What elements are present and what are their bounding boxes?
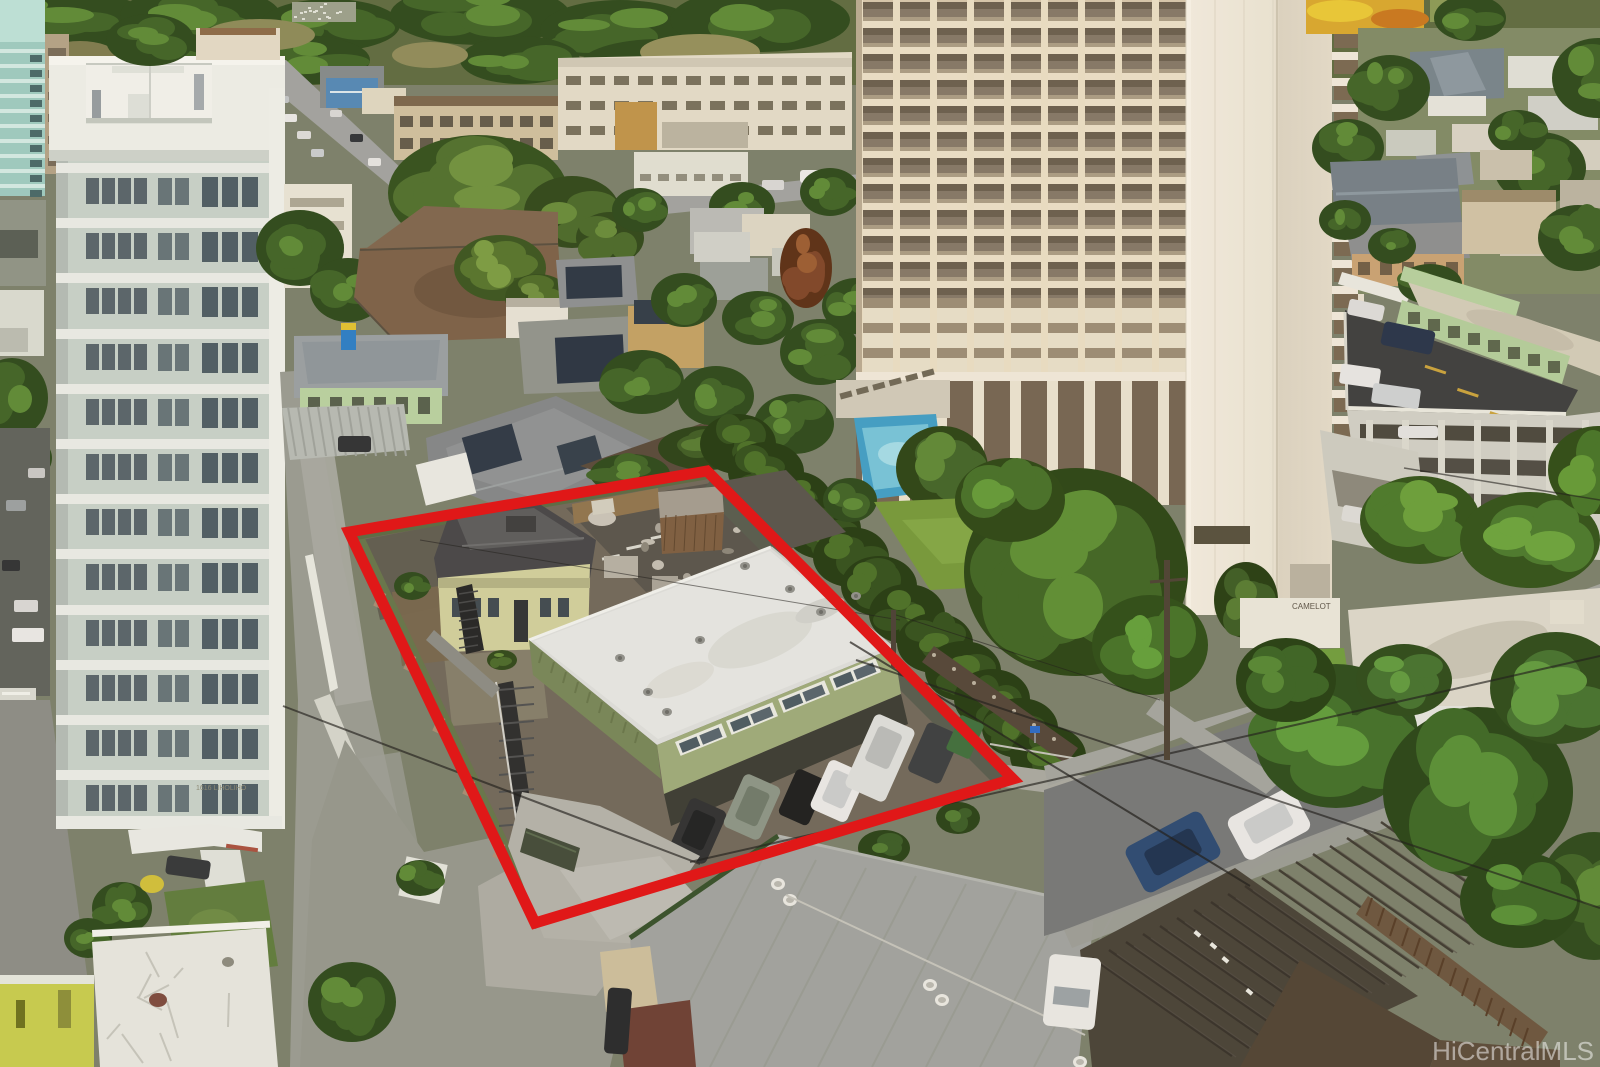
svg-text:HiCentralMLS: HiCentralMLS (1432, 1036, 1594, 1066)
